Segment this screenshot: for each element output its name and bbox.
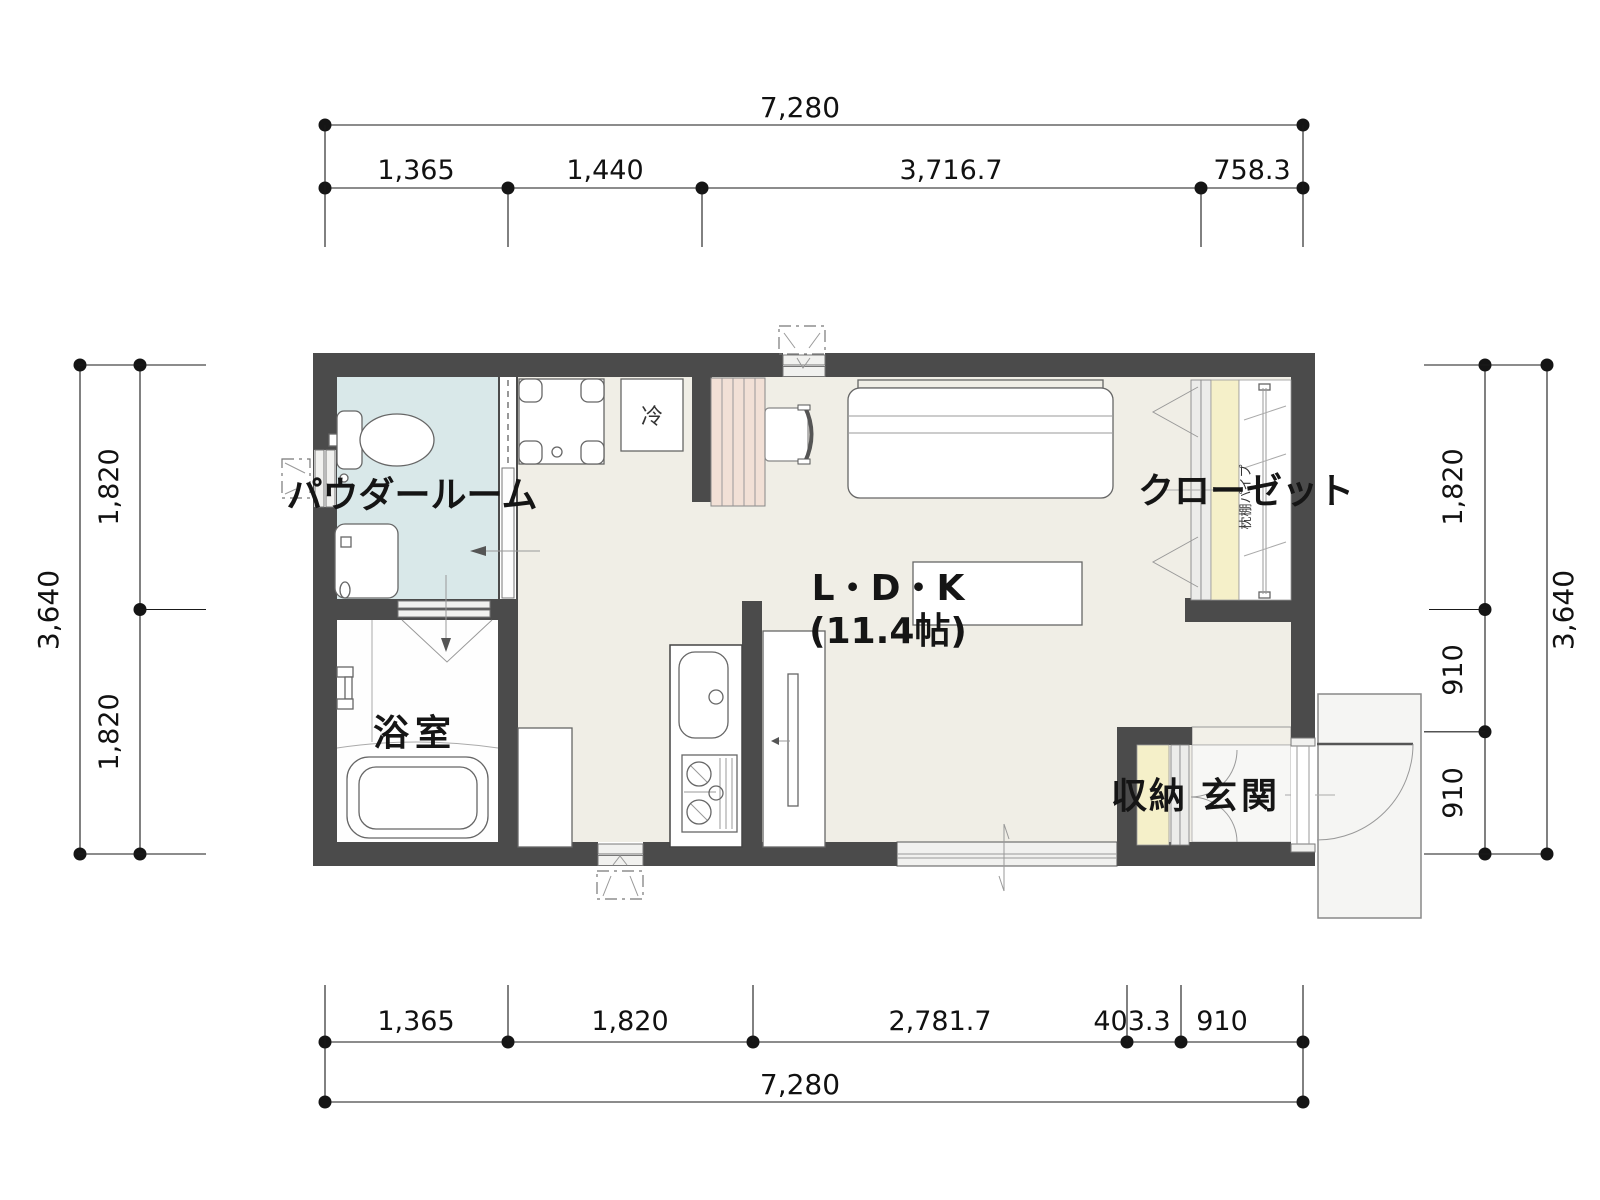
- dim-dot: [1541, 848, 1554, 861]
- bath-door-threshold: [398, 610, 490, 617]
- entry-door-frame: [1291, 738, 1315, 746]
- closet-label: クローゼット: [1138, 471, 1354, 512]
- chair-seat: [765, 408, 808, 461]
- kitchen-island-counter: [763, 631, 825, 847]
- floor-plan-page: パウダールーム 浴室: [0, 0, 1600, 1200]
- dim-label: 1,440: [566, 155, 643, 186]
- dim-label-total-top: 7,280: [760, 91, 840, 124]
- bath-faucet: [345, 677, 352, 699]
- corridor-counter: [518, 728, 572, 847]
- dim-label: 910: [1438, 644, 1469, 696]
- vent-box-left-mark: [285, 463, 305, 473]
- ldk-size-label: (11.4帖): [809, 611, 967, 652]
- entrance-porch: [1318, 694, 1421, 918]
- desk-counter: [711, 378, 765, 506]
- vent-box-top-mark: [809, 333, 820, 348]
- wall-stub-kitchen: [742, 601, 762, 847]
- dim-label: 910: [1196, 1006, 1248, 1037]
- dim-label: 758.3: [1213, 155, 1290, 186]
- wall-storage-top: [1117, 727, 1192, 745]
- refrigerator-label: 冷: [641, 405, 663, 430]
- dimension-bottom: 1,365 1,820 2,781.7 403.3 910 7,280: [319, 985, 1310, 1109]
- toilet-bowl: [360, 414, 434, 466]
- entry-door-frame: [1291, 844, 1315, 852]
- entrance-step: [1192, 727, 1291, 745]
- wall-closet-bottom: [1185, 598, 1315, 622]
- dimension-right: 1,820 910 910 3,640: [1424, 359, 1580, 861]
- bath-door-threshold: [398, 601, 490, 608]
- window-bottom-small-pane: [598, 844, 643, 854]
- dim-label: 1,820: [94, 693, 125, 770]
- chair-back-cap: [798, 459, 810, 464]
- chair-back-cap: [798, 405, 810, 410]
- entry-door-opening: [1291, 738, 1315, 852]
- dim-label: 1,365: [377, 155, 454, 186]
- bathroom-label: 浴室: [373, 713, 457, 754]
- bath-faucet: [337, 699, 353, 709]
- window-top-pane: [783, 367, 825, 377]
- washbasin-faucet: [340, 582, 350, 598]
- washer-pan-corner: [581, 441, 604, 464]
- floor-plan-drawing: パウダールーム 浴室: [0, 0, 1600, 1200]
- dim-label: 1,820: [1438, 448, 1469, 525]
- dim-label-total-bottom: 7,280: [760, 1068, 840, 1101]
- bath-faucet: [337, 667, 353, 677]
- washer-pan-corner: [519, 441, 542, 464]
- kitchen-counter: [670, 645, 742, 847]
- dimension-left: 3,640 1,820 1,820: [32, 359, 206, 861]
- washer-pan-corner: [581, 379, 604, 402]
- powder-room-label: パウダールーム: [287, 475, 538, 516]
- dim-label: 910: [1438, 767, 1469, 819]
- storage-label: 収納: [1111, 776, 1187, 817]
- bed: [848, 388, 1113, 498]
- dim-dot: [1541, 359, 1554, 372]
- dim-label: 1,820: [94, 448, 125, 525]
- dim-label: 403.3: [1093, 1006, 1170, 1037]
- dim-label: 1,365: [377, 1006, 454, 1037]
- vent-box-bottom-mark: [603, 876, 611, 896]
- vent-box-top: [779, 326, 825, 354]
- ldk-label: L・D・K: [812, 568, 966, 609]
- toilet-tank: [337, 411, 362, 469]
- window-ldk-center-tick: [999, 876, 1004, 891]
- dim-dot: [1297, 1096, 1310, 1109]
- dim-label-total-left: 3,640: [32, 570, 65, 650]
- wall-stub-top: [692, 377, 712, 502]
- window-top-pane: [783, 355, 825, 365]
- dim-dot: [319, 1096, 332, 1109]
- dim-label: 2,781.7: [888, 1006, 991, 1037]
- washer-pan-corner: [519, 379, 542, 402]
- dim-label-total-right: 3,640: [1547, 570, 1580, 650]
- vent-box-top-mark: [784, 333, 795, 348]
- dim-label: 3,716.7: [899, 155, 1002, 186]
- vent-box-bottom-mark: [630, 876, 638, 896]
- dimension-top: 7,280 1,365 1,440 3,716.7 758.3: [319, 91, 1310, 247]
- entrance-label: 玄関: [1201, 776, 1281, 817]
- dim-label: 1,820: [591, 1006, 668, 1037]
